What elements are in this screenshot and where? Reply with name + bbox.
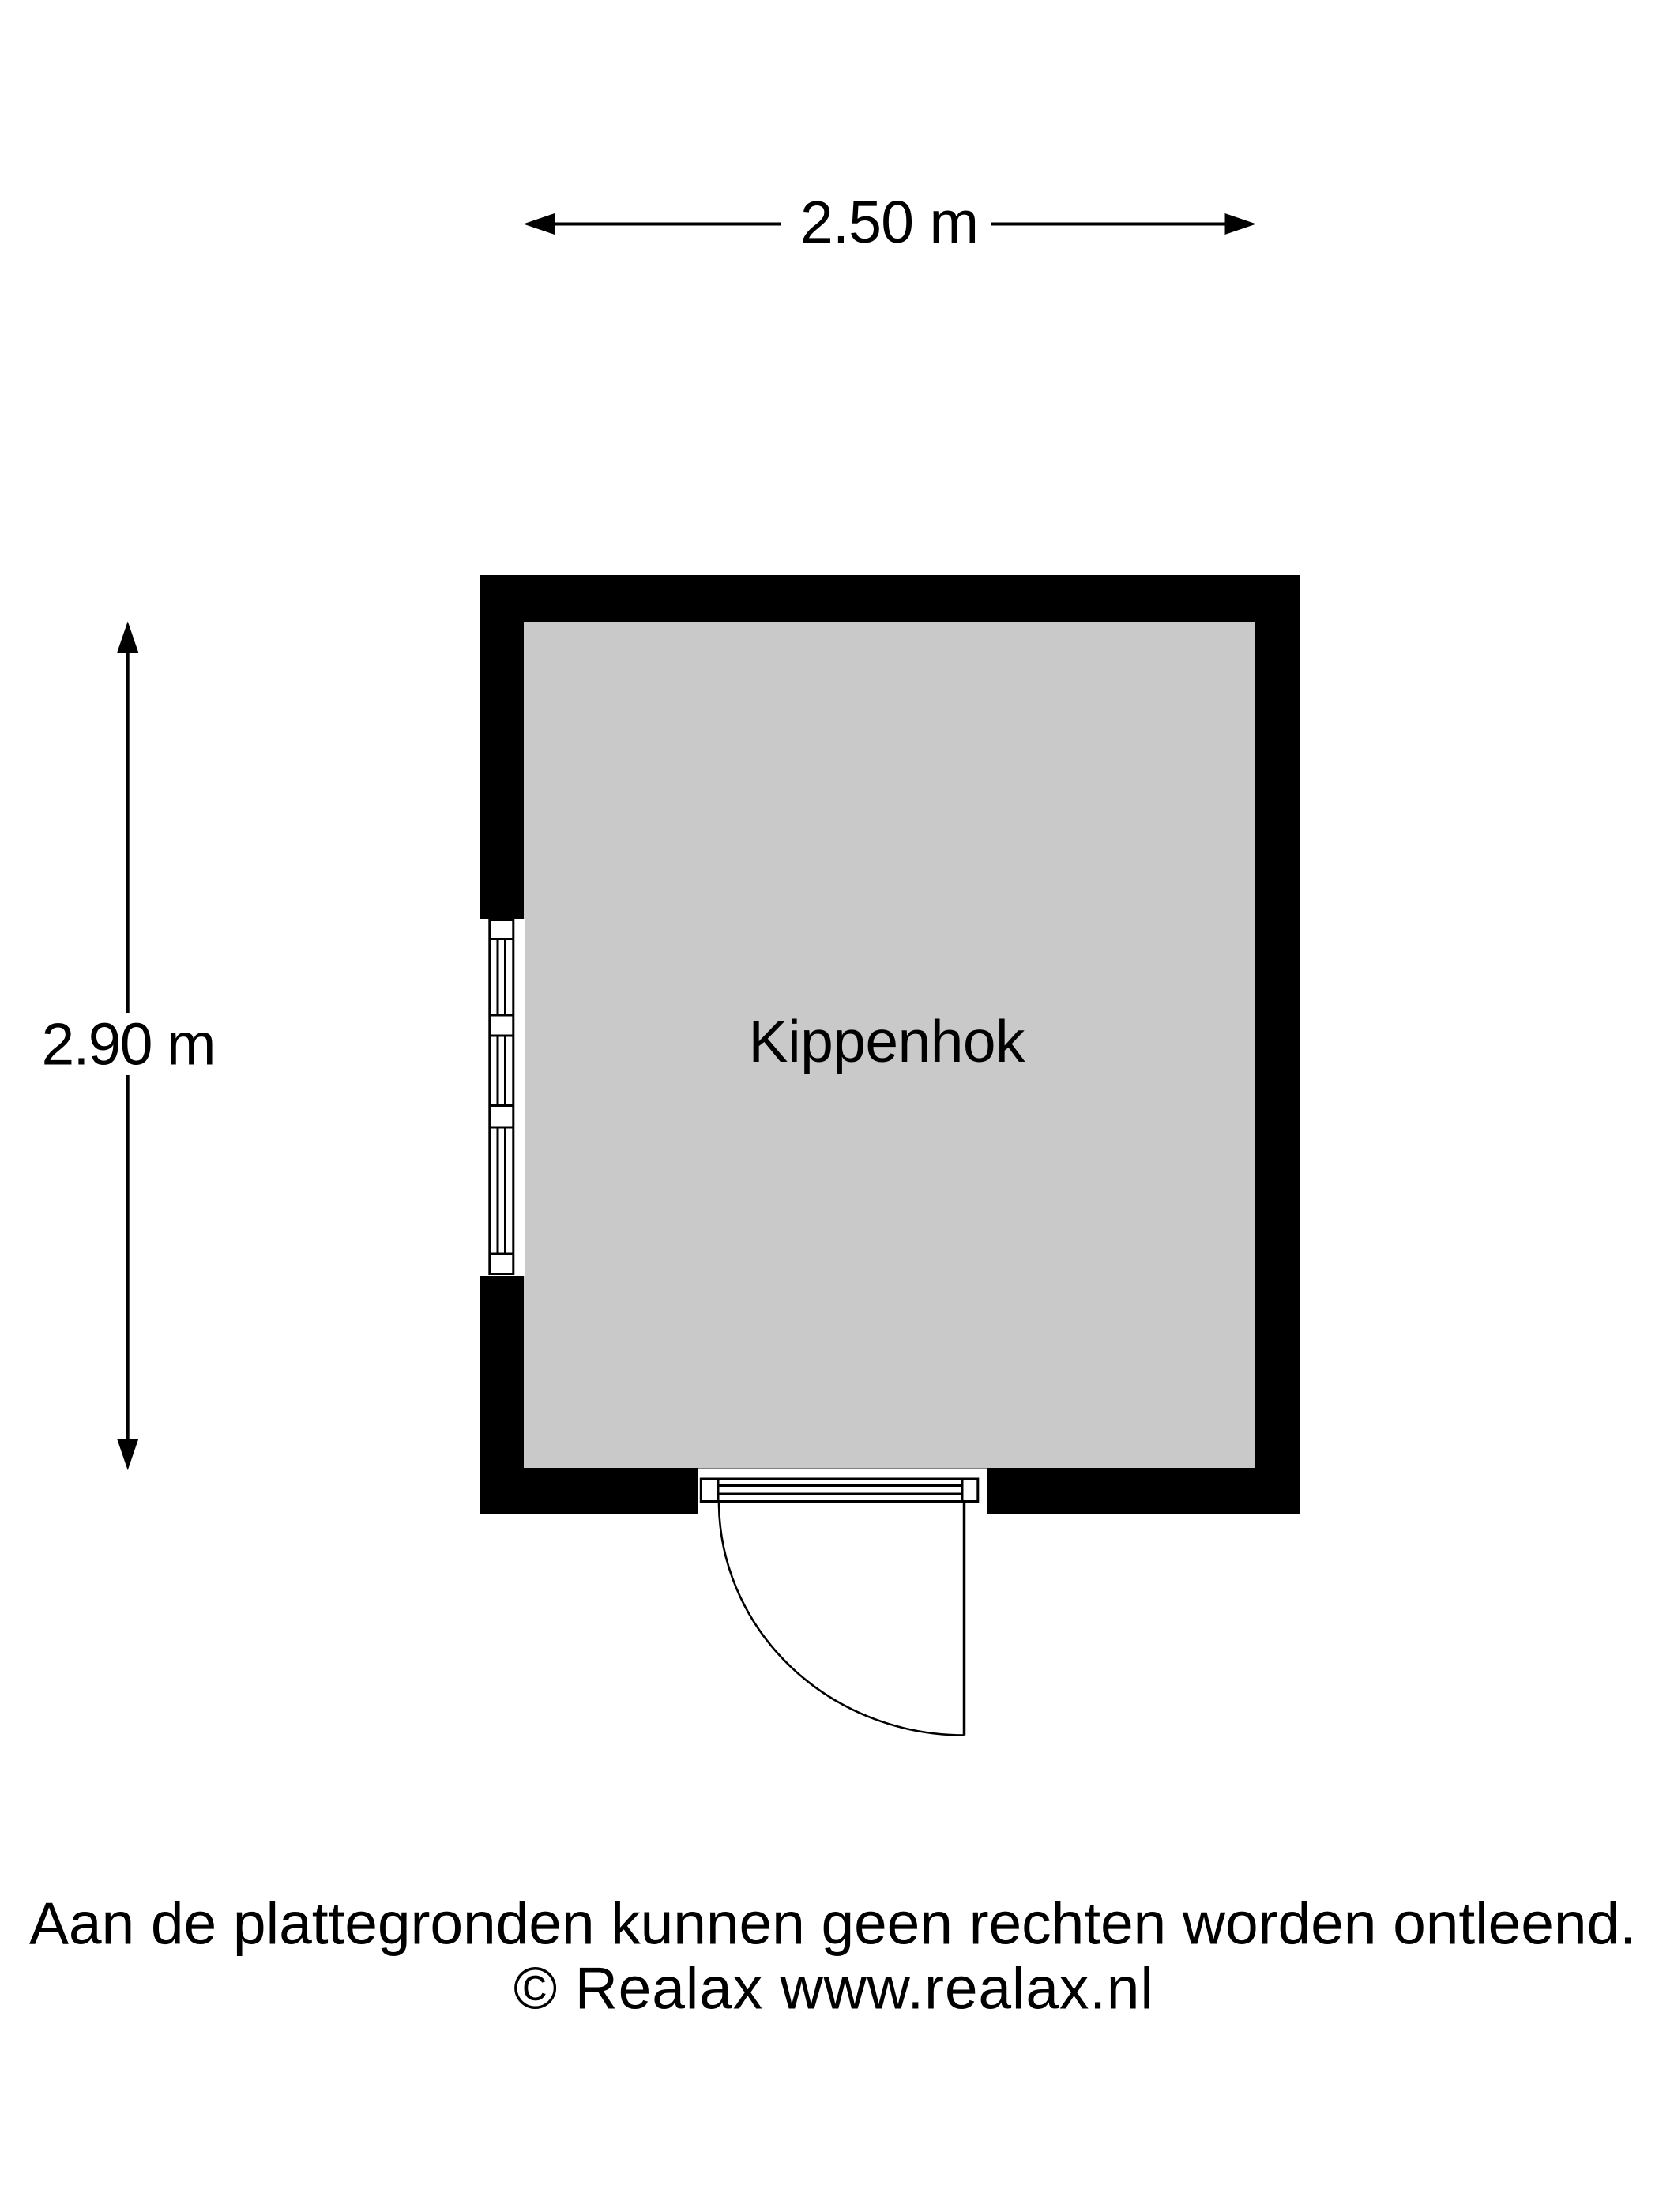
- svg-text:© Realax www.realax.nl: © Realax www.realax.nl: [513, 1955, 1153, 2022]
- svg-text:2.90 m: 2.90 m: [42, 1011, 216, 1078]
- svg-text:Aan de plattegronden kunnen ge: Aan de plattegronden kunnen geen rechten…: [29, 1890, 1636, 1957]
- svg-text:Kippenhok: Kippenhok: [749, 1008, 1026, 1074]
- svg-text:2.50 m: 2.50 m: [800, 189, 979, 255]
